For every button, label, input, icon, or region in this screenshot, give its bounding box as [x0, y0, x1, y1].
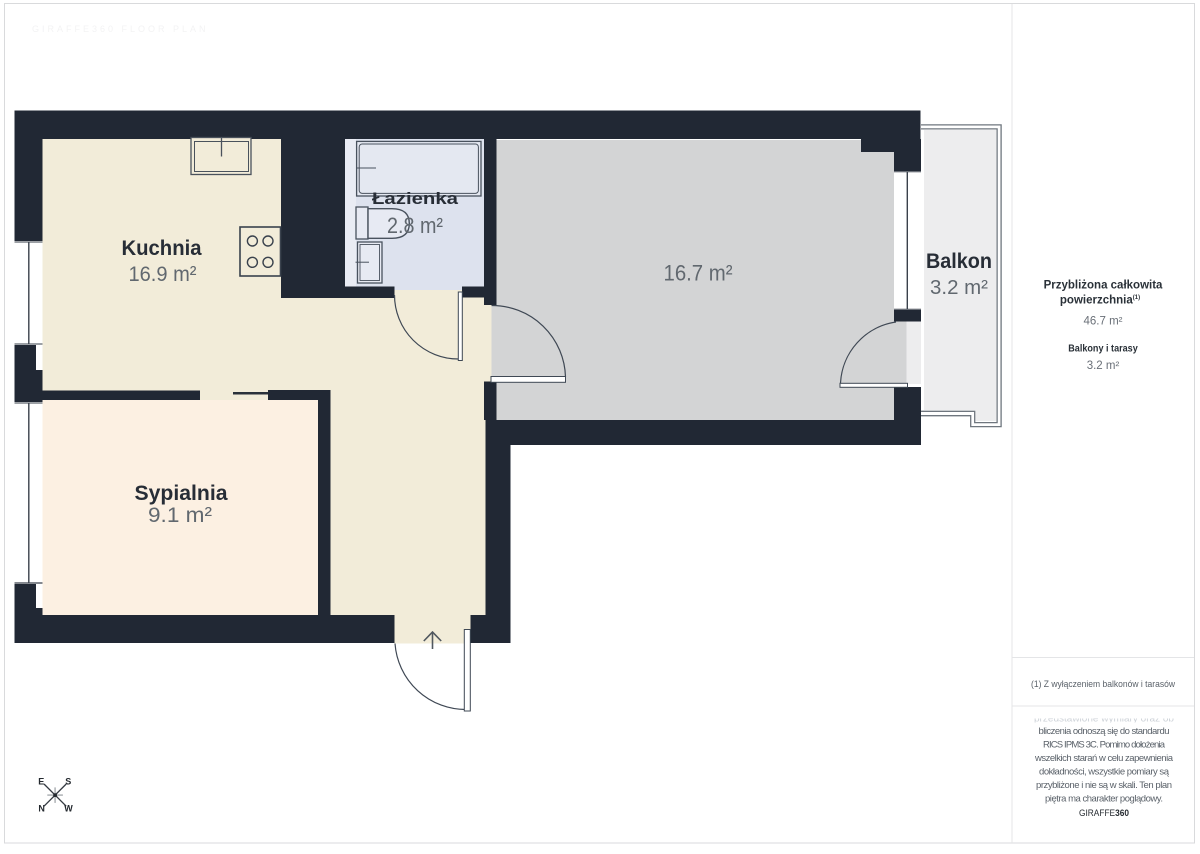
svg-text:Kuchnia: Kuchnia	[122, 237, 202, 260]
svg-text:2.8 m²: 2.8 m²	[387, 213, 443, 238]
svg-text:bliczenia odnoszą się do stand: bliczenia odnoszą się do standardu	[1039, 726, 1170, 737]
svg-text:S: S	[65, 776, 71, 786]
svg-text:powierzchnia(1): powierzchnia(1)	[1060, 294, 1140, 306]
svg-text:GIRAFFE360 FLOOR PLAN: GIRAFFE360 FLOOR PLAN	[32, 24, 209, 34]
svg-text:GIRAFFE360: GIRAFFE360	[1079, 808, 1129, 819]
svg-text:9.1 m²: 9.1 m²	[148, 504, 212, 527]
svg-text:Sypialnia: Sypialnia	[135, 482, 228, 505]
svg-text:Balkon: Balkon	[926, 249, 992, 273]
svg-text:3.2 m²: 3.2 m²	[930, 276, 988, 299]
svg-text:wszelkich starań w celu zapewn: wszelkich starań w celu zapewnienia	[1034, 753, 1174, 764]
svg-text:16.7 m²: 16.7 m²	[664, 261, 733, 286]
svg-text:3.2 m²: 3.2 m²	[1087, 360, 1120, 372]
svg-text:E: E	[38, 776, 44, 786]
svg-text:przybliżone i nie są w skali.: przybliżone i nie są w skali. Ten plan	[1036, 780, 1172, 791]
svg-text:N: N	[38, 803, 45, 813]
svg-text:Balkony i tarasy: Balkony i tarasy	[1068, 343, 1138, 355]
svg-text:46.7 m²: 46.7 m²	[1084, 315, 1123, 327]
svg-text:RICS IPMS 3C. Pomimo dołożenia: RICS IPMS 3C. Pomimo dołożenia	[1043, 740, 1166, 751]
svg-text:piętra ma charakter poglądowy.: piętra ma charakter poglądowy.	[1045, 794, 1163, 805]
svg-text:(1) Z wyłączeniem balkonów i t: (1) Z wyłączeniem balkonów i tarasów	[1031, 679, 1175, 690]
svg-text:Przybliżona całkowita: Przybliżona całkowita	[1044, 279, 1163, 291]
svg-text:Łazienka: Łazienka	[372, 189, 459, 208]
svg-text:W: W	[64, 803, 73, 813]
svg-text:16.9 m²: 16.9 m²	[129, 263, 197, 286]
svg-text:dokładności, wszystkie pomiary: dokładności, wszystkie pomiary są	[1039, 767, 1170, 778]
